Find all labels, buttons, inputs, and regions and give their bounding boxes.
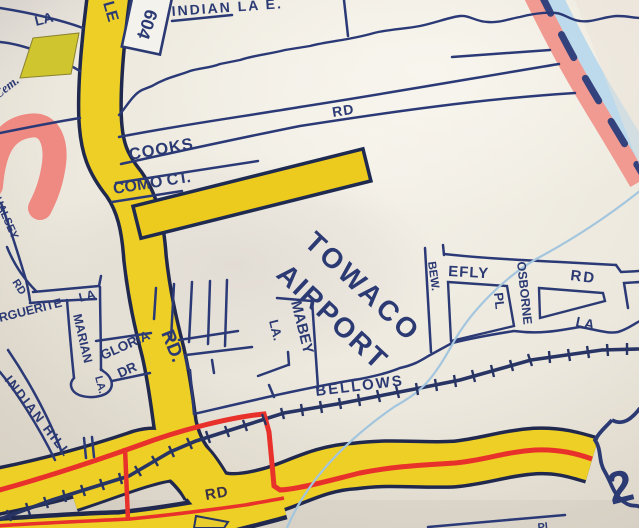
- svg-text:PL: PL: [491, 292, 508, 310]
- svg-text:Pl: Pl: [537, 521, 549, 528]
- svg-text:EFLY: EFLY: [448, 263, 490, 282]
- svg-text:RD: RD: [570, 267, 598, 287]
